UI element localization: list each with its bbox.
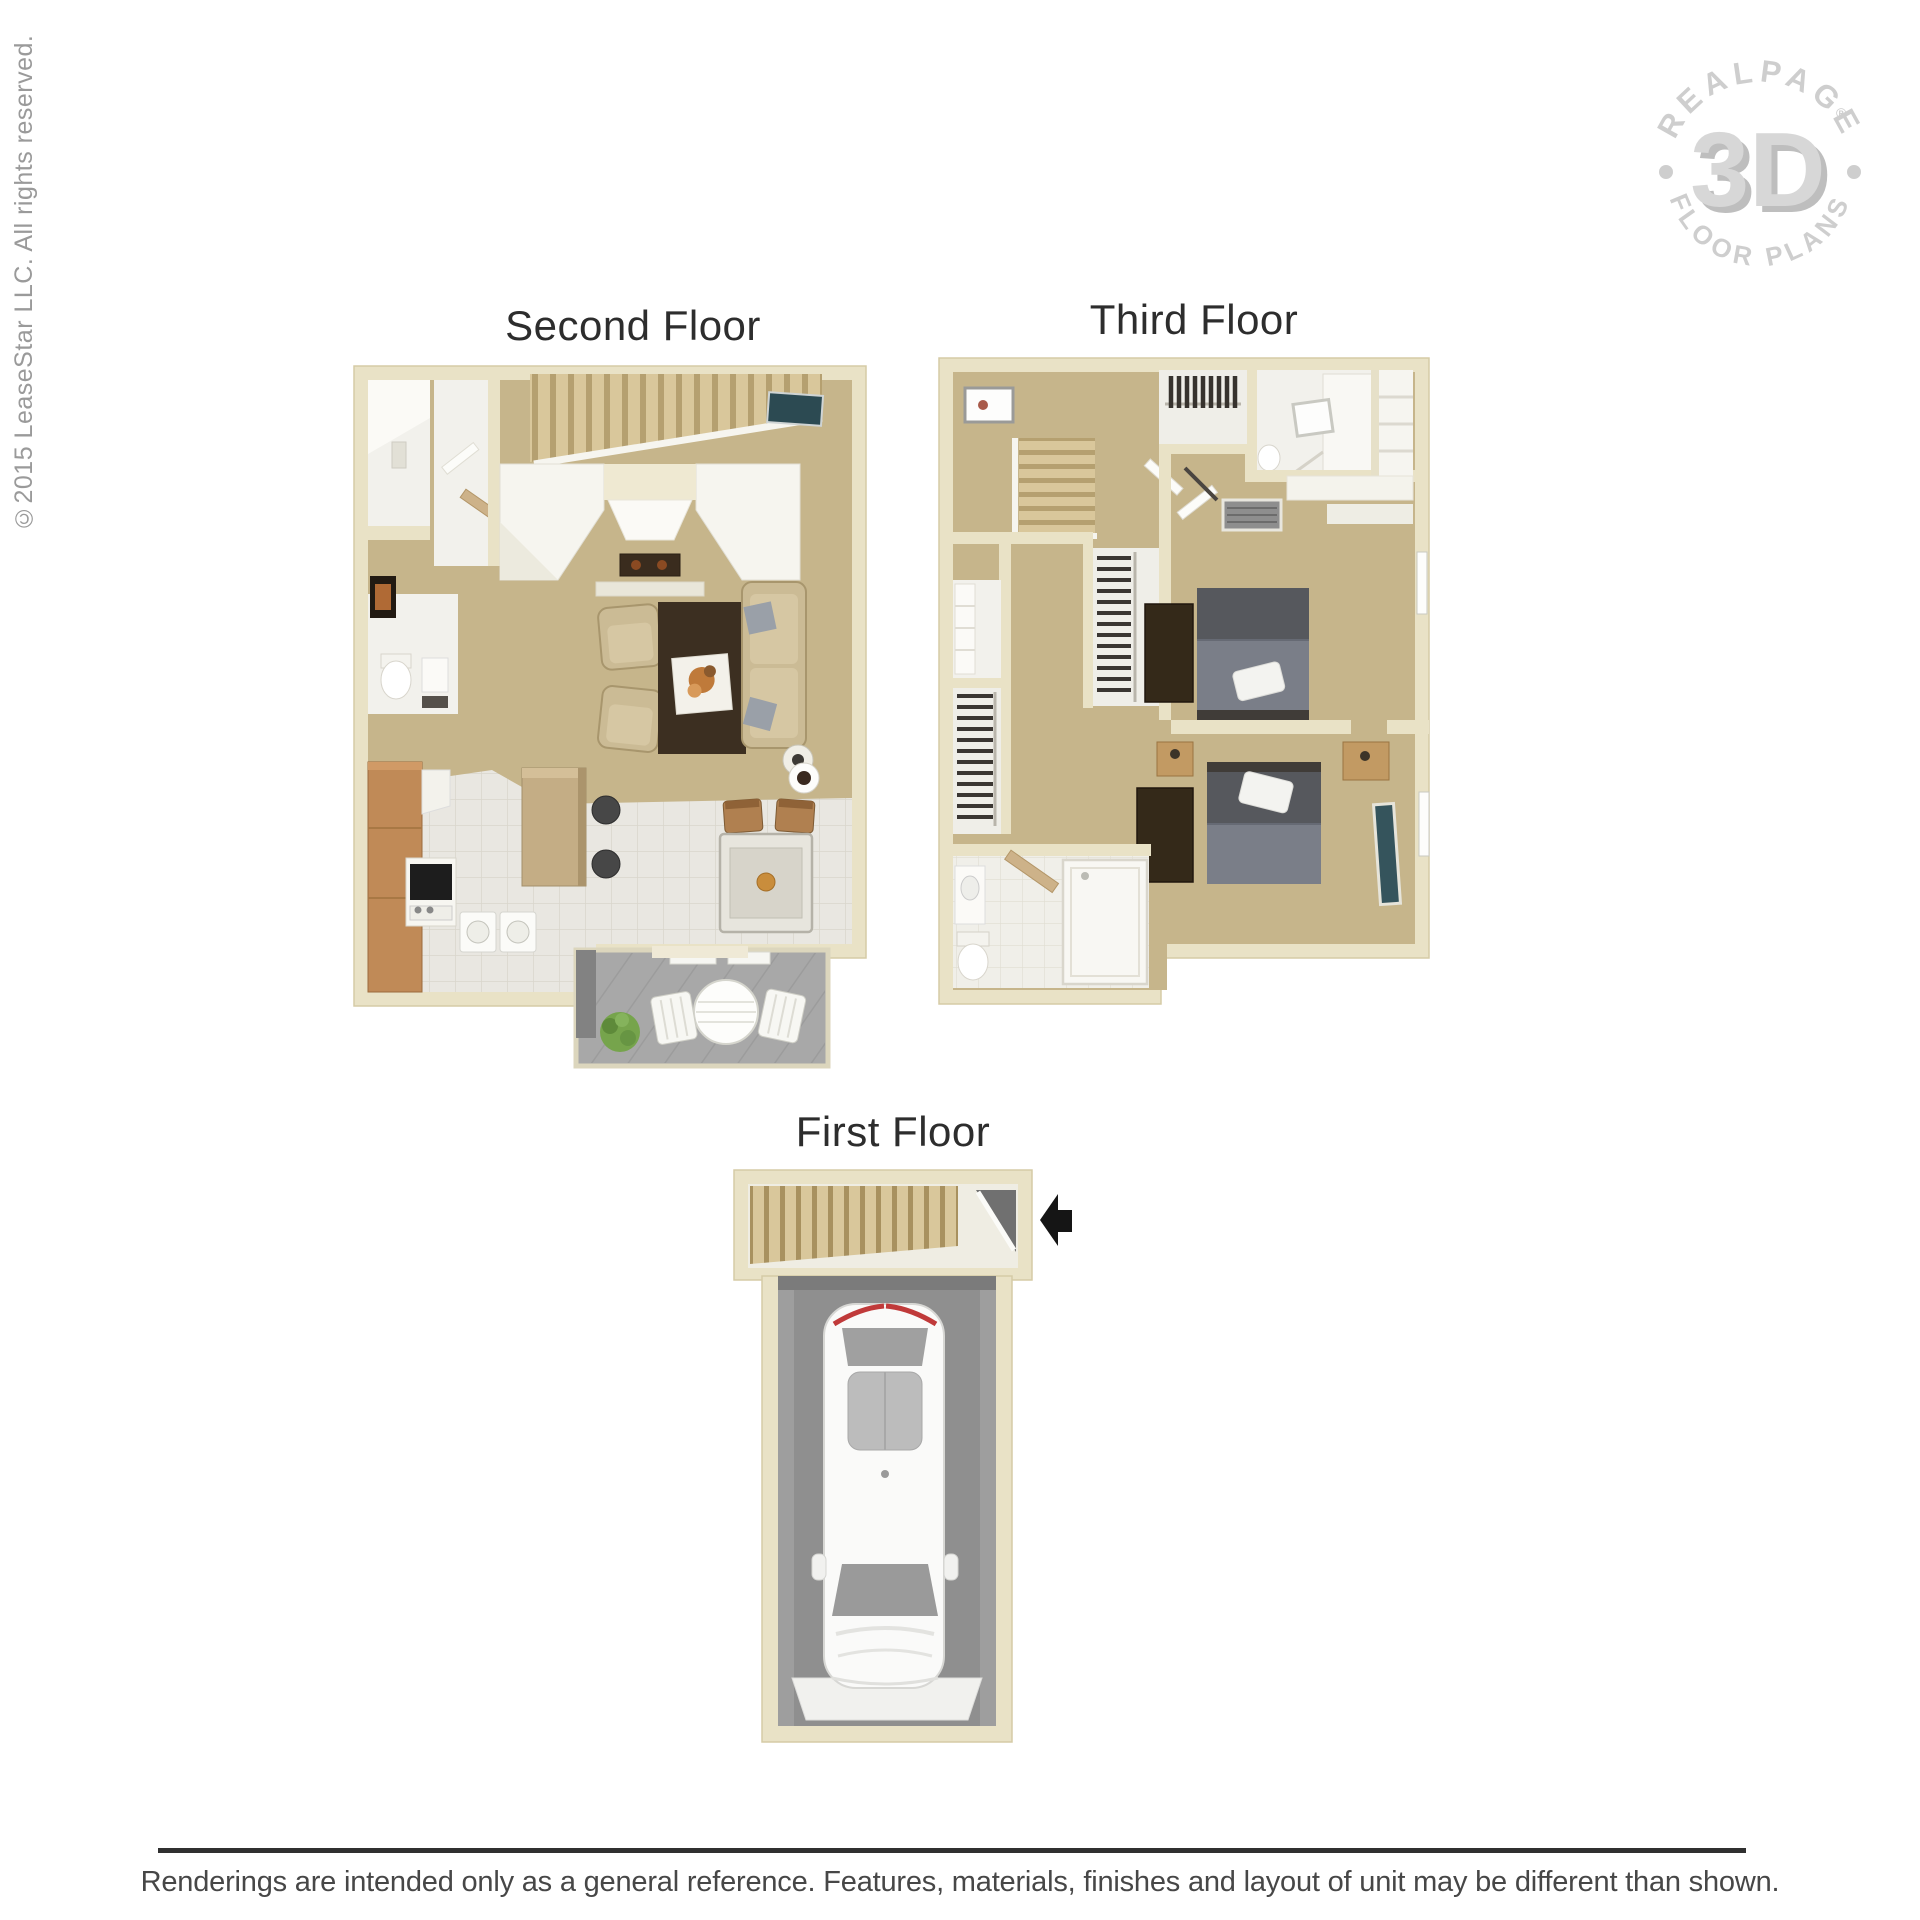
side-mirror (812, 1554, 826, 1580)
window (1417, 552, 1427, 614)
logo-right-dot-icon (1847, 165, 1861, 179)
hearth-shelf (596, 582, 704, 596)
linen-closet (1371, 370, 1413, 478)
fruit-bowl (757, 873, 775, 891)
logo-3d-mark: 3D 3D (1690, 111, 1832, 235)
sofa (742, 582, 806, 748)
interior-wall (488, 380, 500, 566)
car (812, 1304, 958, 1688)
range-hood (422, 770, 450, 814)
coffee-station (789, 763, 819, 793)
realpage-3d-logo: REALPAGE FLOOR PLANS ® 3D 3D (1640, 52, 1880, 292)
balcony (576, 946, 828, 1066)
reach-in-closet (953, 688, 1001, 834)
bar-stool (592, 796, 620, 824)
logo-left-dot-icon (1659, 165, 1673, 179)
svg-text:3D: 3D (1690, 111, 1826, 229)
kitchen-island (522, 768, 586, 886)
entry-closet (434, 380, 494, 566)
coffee-table-tray (672, 654, 733, 715)
throw-pillow (743, 601, 776, 634)
side-mirror (944, 1554, 958, 1580)
window (1419, 792, 1429, 856)
patio-chair (650, 991, 698, 1045)
disclaimer-text: Renderings are intended only as a genera… (0, 1866, 1920, 1899)
interior-wall (953, 844, 1151, 856)
interior-wall (1387, 720, 1429, 734)
interior-wall (1083, 538, 1093, 708)
wall-art (965, 388, 1013, 422)
floorplan-canvas: ©2015 LeaseStar LLC. All rights reserved… (0, 0, 1920, 1920)
bedroom-1-bed (1197, 588, 1309, 720)
shower-tub (1063, 860, 1147, 984)
armchair (597, 604, 662, 671)
dining-chair (723, 799, 763, 834)
wall-fixture (392, 442, 406, 468)
hall-bathroom (953, 844, 1151, 988)
third-floor-plan (935, 352, 1455, 1022)
hall-closet (1159, 370, 1255, 454)
third-floor-label: Third Floor (1090, 296, 1299, 344)
ceiling-vent (1223, 500, 1281, 530)
interior-wall (953, 532, 1093, 544)
upper-left-closet (368, 380, 430, 526)
sink-vanity (422, 658, 448, 692)
windshield (832, 1564, 938, 1616)
first-floor-label: First Floor (796, 1108, 991, 1156)
entry-arrow-icon (1040, 1194, 1072, 1246)
copyright-text: ©2015 LeaseStar LLC. All rights reserved… (10, 22, 46, 532)
toilet (958, 944, 988, 980)
closet-ledge (1287, 476, 1413, 500)
stairwell (1015, 438, 1097, 536)
footer-divider (158, 1848, 1746, 1853)
nightstand (1343, 742, 1389, 780)
armchair (597, 685, 663, 753)
bar-stool (592, 850, 620, 878)
bath-accessory (422, 696, 448, 708)
interior-wall (953, 678, 1001, 688)
potted-plant (600, 1012, 640, 1052)
skylight (1293, 400, 1333, 437)
dining-chair (775, 799, 815, 834)
entry-stair-block (734, 1170, 1032, 1280)
wall-tv (767, 392, 823, 426)
second-floor-label: Second Floor (505, 302, 761, 350)
first-floor-plan (732, 1164, 1112, 1764)
bedroom-2-bed (1207, 762, 1321, 884)
nightstand (1157, 742, 1193, 776)
interior-wall (1159, 444, 1255, 454)
balcony-shadow-wall (576, 950, 596, 1038)
logo-registered-mark: ® (1836, 105, 1847, 121)
dining-table (720, 834, 812, 932)
media-wall (500, 464, 800, 596)
bedroom-1-dresser (1145, 604, 1193, 702)
interior-wall (1171, 720, 1351, 734)
left-shelving-nook (953, 580, 1001, 680)
rear-window (842, 1328, 928, 1366)
toilet (381, 661, 411, 699)
wall-art (370, 576, 396, 618)
fireplace-insert (620, 554, 680, 576)
toilet (1258, 445, 1280, 471)
closet-ledge (1327, 504, 1413, 524)
sliding-door (652, 946, 748, 958)
interior-wall (368, 526, 430, 540)
stove (406, 858, 456, 926)
second-floor-plan (352, 358, 872, 1078)
